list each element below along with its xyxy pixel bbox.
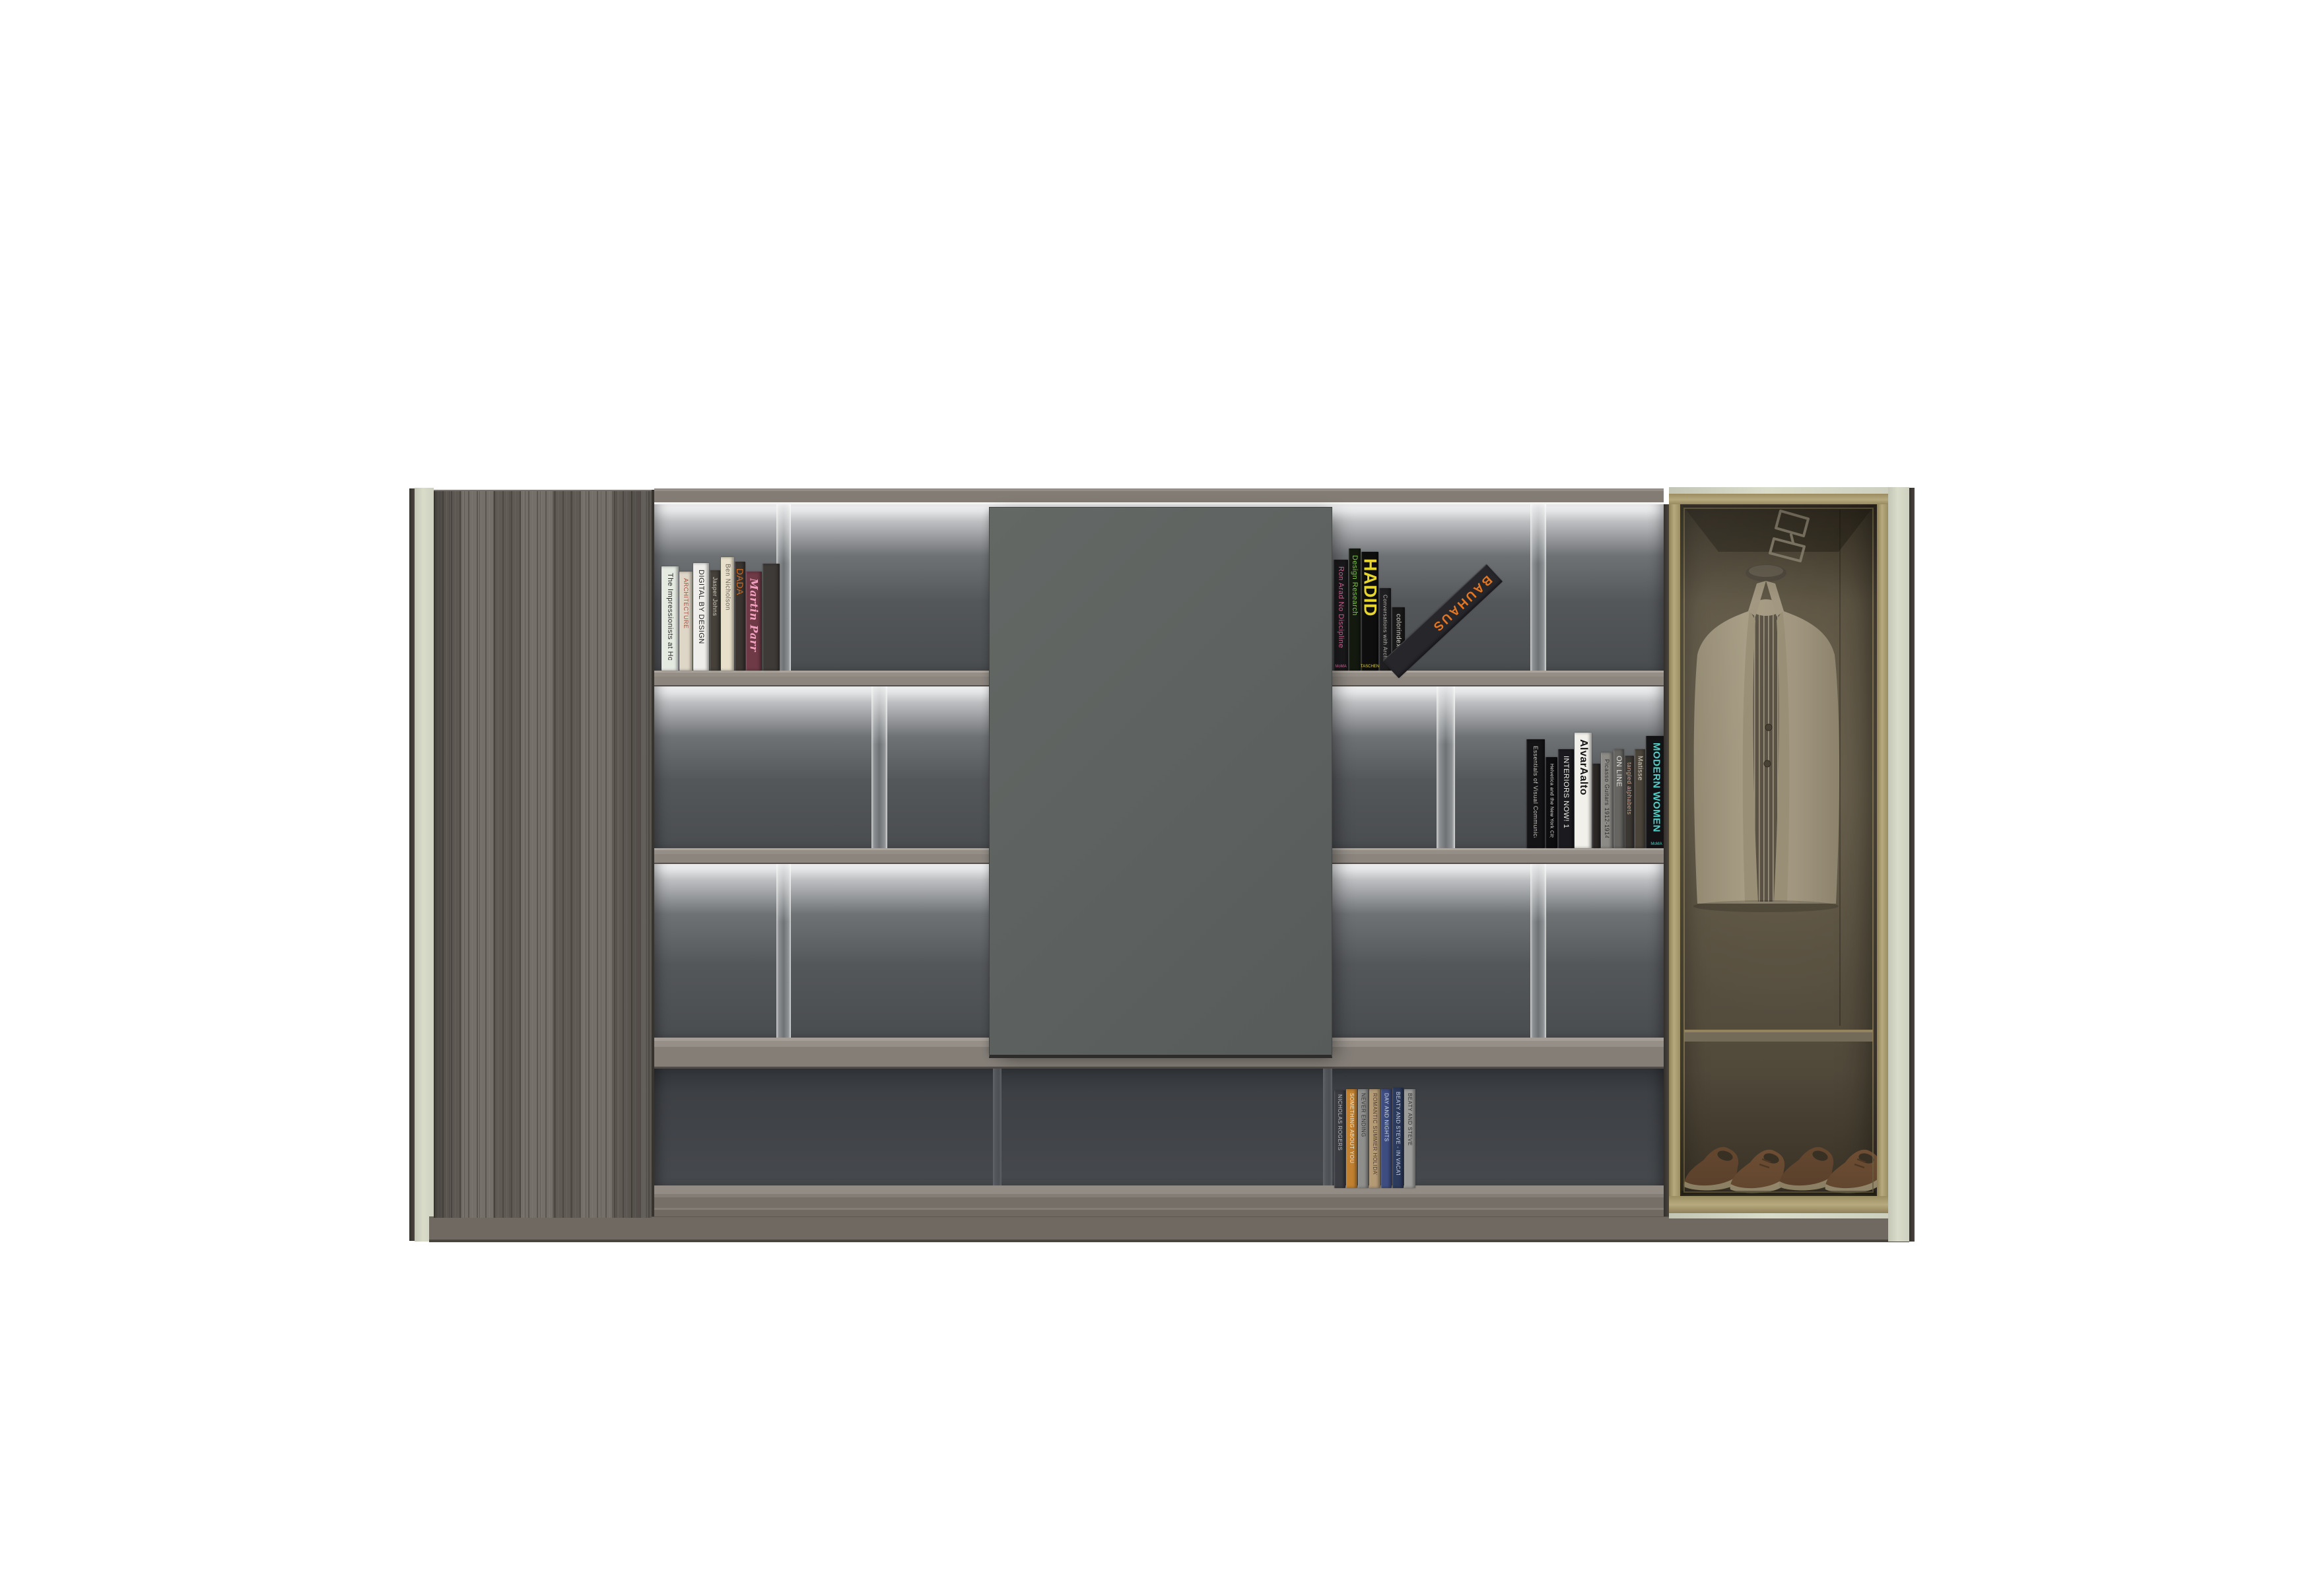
books-top-left: The Impressionists at HomeARCHITECTUREDI… [662,545,780,671]
wardrobe-sill [1669,1213,1888,1218]
book-spine: HADIDTASCHEN [1361,552,1378,671]
book-spine: tangled alphabets [1625,756,1634,848]
book-title: MODERN WOMEN [1651,743,1662,832]
book-spine [763,564,780,671]
hinged-wood-door [434,490,652,1218]
book-title: DAY AND NIGHTS [1384,1093,1390,1142]
vertical-divider [776,863,791,1038]
wardrobe-frame-bottom [1669,1196,1888,1213]
book-title: BEATY AND STEVE [1407,1093,1413,1146]
book-title: ROMANTIC SUMMER HOLIDAYS [1372,1093,1378,1175]
book-title: Ron Arad No Discipline [1337,566,1345,648]
book-title: Picasso Guitars 1912-1914 [1604,759,1610,838]
book-title: Matisse [1637,756,1644,781]
book-title: The Impressionists at Home [666,573,674,660]
shelf-row-4-back [654,1067,1664,1185]
book-spine: Ron Arad No DisciplineMoMA [1334,560,1348,671]
book-spine: DIGITAL BY DESIGN [693,563,709,671]
wardrobe-frame-right [1877,504,1888,1213]
book-spine: The Impressionists at Home [662,566,679,671]
book-spine: Ben Nicholson [721,557,734,671]
book-spine: INTERIORS NOW! 1 [1558,749,1574,848]
sliding-door-panel [989,507,1332,1058]
book-title: Jasper Johns [712,577,718,616]
book-title: NEVER ENDING [1361,1093,1367,1137]
book-spine: ON LINE [1614,749,1624,848]
vertical-divider [1530,863,1546,1038]
wardrobe-frame-left [1669,504,1680,1213]
cabinet-left-outer-edge [409,488,415,1241]
book-title: SOMETHING ABOUT YOU [1349,1093,1355,1164]
book-title: ARCHITECTURE [683,578,689,629]
publisher-mark: TASCHEN [1361,665,1379,669]
wardrobe-glass-door [1680,504,1877,1196]
book-title: tangled alphabets [1626,762,1633,815]
book-spine: ROMANTIC SUMMER HOLIDAYS [1369,1089,1380,1188]
book-spine: DADA [735,562,745,671]
book-spine: SOMETHING ABOUT YOU [1346,1089,1357,1188]
publisher-mark: MoMA [1335,665,1346,669]
book-spine: DAY AND NIGHTS [1381,1089,1392,1188]
glass-inner-frame [1683,508,1874,1193]
book-title: DIGITAL BY DESIGN [697,570,705,644]
book-title: Essentials of Visual Communication [1532,746,1539,838]
book-spine: BEATY AND STEVE - IN VACATION [1392,1088,1404,1188]
book-spine: NICHOLAS ROGERS [1334,1090,1345,1188]
book-spine: AlvarAalto [1575,733,1592,848]
book-spine: Jasper Johns [710,570,720,671]
cabinet-left-side-panel [415,488,434,1242]
book-title: Design Research [1351,555,1359,616]
cabinet-right-outer-edge [1909,488,1915,1242]
book-spine: Design Research [1349,549,1361,671]
book-spine: ARCHITECTURE [679,572,693,671]
book-title: INTERIORS NOW! 1 [1562,756,1570,828]
book-spine: Picasso Guitars 1912-1914 [1601,752,1613,848]
media-cases-bottom: NICHOLAS ROGERSSOMETHING ABOUT YOUNEVER … [1334,1085,1416,1188]
book-title: Ben Nicholson [724,564,731,611]
book-title: ON LINE [1615,756,1623,787]
plinth-base [429,1216,1909,1242]
publisher-mark: MoMA [1650,842,1662,846]
book-spine: BEATY AND STEVE [1404,1089,1415,1188]
vertical-divider-bottom [993,1067,1002,1185]
vertical-divider [871,685,887,848]
book-title: BEATY AND STEVE - IN VACATION [1395,1092,1401,1175]
vertical-divider [1437,685,1455,848]
vertical-divider [1530,504,1546,671]
book-title: NICHOLAS ROGERS [1337,1094,1343,1150]
top-rail [654,488,1664,504]
books-middle-right: Essentials of Visual CommunicationHelvet… [1526,723,1668,848]
book-spine [1592,764,1600,848]
book-title: AlvarAalto [1577,739,1589,795]
book-title: DADA [735,568,745,595]
book-spine: NEVER ENDING [1358,1089,1369,1188]
book-spine: Martin Parr [746,572,762,671]
bottom-floor-board [654,1185,1664,1216]
book-title: Helvetica and the New York City Subway S… [1549,764,1554,838]
book-title: Martin Parr [748,578,761,652]
book-spine: Matisse [1635,749,1645,848]
book-title: HADID [1360,558,1380,616]
vertical-divider-bottom [1323,1067,1332,1185]
product-render-canvas: The Impressionists at HomeARCHITECTUREDI… [0,0,2310,1596]
wardrobe-side-wall [1664,504,1669,1216]
book-spine: Helvetica and the New York City Subway S… [1546,757,1557,848]
cabinet-right-side-panel [1888,487,1909,1242]
book-spine: Essentials of Visual Communication [1526,739,1545,848]
book-title: Conversations with Architects [1382,595,1388,660]
